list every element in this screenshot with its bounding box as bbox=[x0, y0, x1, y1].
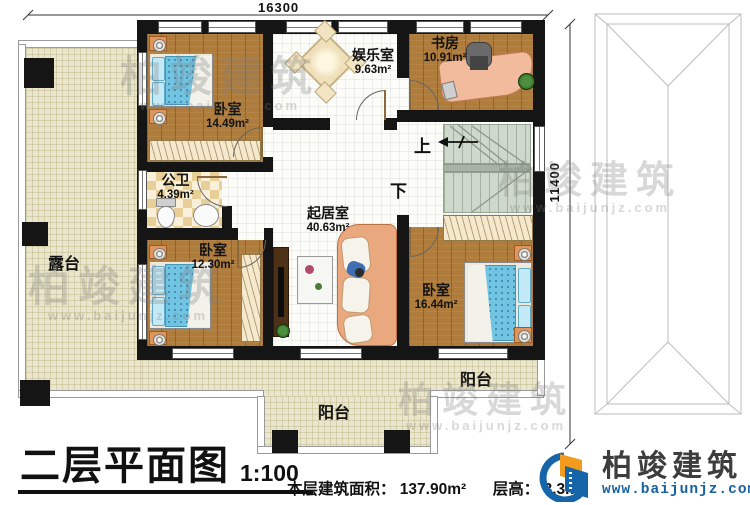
window-study-2 bbox=[470, 21, 522, 33]
window-bedroom-tl-2 bbox=[208, 21, 256, 33]
pillow bbox=[152, 82, 165, 106]
window-bedroom-br-south bbox=[438, 348, 508, 359]
window-study-1 bbox=[416, 21, 464, 33]
column-terrace-nw bbox=[24, 58, 54, 88]
room-label-entertainment: 娱乐室 9.63m² bbox=[343, 48, 403, 77]
parapet-right-edge bbox=[537, 358, 545, 396]
dimension-top-label: 16300 bbox=[258, 0, 299, 15]
lamp-icon bbox=[153, 248, 166, 260]
floor-area-text: 本层建筑面积： 137.90m² bbox=[287, 481, 466, 498]
window-bedroom-tl-1 bbox=[158, 21, 202, 33]
door-leaf bbox=[261, 127, 263, 157]
flower-decoration bbox=[305, 265, 314, 274]
column-terrace-w bbox=[22, 222, 48, 246]
wall-pier-hall bbox=[264, 228, 273, 240]
flower-decoration bbox=[315, 283, 322, 290]
terrace-parapet-top bbox=[18, 40, 142, 48]
brand-name: 柏竣建筑 bbox=[602, 452, 750, 482]
wall-bedroom-tl-south bbox=[137, 162, 273, 172]
window-bathroom-west bbox=[138, 170, 147, 210]
plan-title-block: 二层平面图 1:100 bbox=[18, 446, 313, 494]
sofa-cushion bbox=[342, 313, 374, 345]
terrace-floor bbox=[26, 48, 142, 390]
nightstand bbox=[149, 245, 167, 259]
room-label-terrace: 露台 bbox=[48, 250, 80, 274]
plan-title: 二层平面图 bbox=[20, 446, 230, 486]
column-terrace-sw bbox=[20, 380, 50, 406]
brand-text: 柏竣建筑 www.baijunjz.com bbox=[602, 452, 750, 498]
coffee-table bbox=[297, 256, 333, 304]
pillow bbox=[152, 297, 165, 326]
room-label-bedroom-br: 卧室 16.44m² bbox=[400, 283, 472, 312]
parapet-bottom-right bbox=[430, 390, 544, 398]
plant-icon bbox=[518, 73, 535, 90]
wall-entertainment-south bbox=[273, 118, 330, 130]
room-label-bedroom-bl: 卧室 12.30m² bbox=[168, 243, 258, 272]
balcony-parapet-right bbox=[430, 396, 438, 454]
brand-url: www.baijunjz.com bbox=[602, 482, 750, 498]
window-living-south bbox=[300, 348, 362, 359]
plant-icon bbox=[276, 324, 290, 338]
column-balcony-right bbox=[384, 430, 410, 453]
pillow bbox=[518, 268, 531, 303]
bedroom-br-wardrobe bbox=[443, 215, 533, 241]
stair-upper-flight bbox=[443, 124, 531, 164]
lamp-icon bbox=[153, 39, 166, 52]
door-leaf bbox=[409, 80, 411, 110]
window-entertainment-2 bbox=[338, 21, 388, 33]
plan-stats: 本层建筑面积： 137.90m² 层高： 3.3m bbox=[287, 477, 579, 499]
parapet-bottom-left bbox=[18, 390, 264, 398]
nightstand bbox=[514, 245, 532, 261]
sofa bbox=[337, 224, 397, 346]
tv-icon bbox=[278, 267, 284, 317]
nightstand bbox=[149, 331, 167, 345]
pillow bbox=[152, 57, 165, 81]
stair-up-label: 上 bbox=[414, 132, 431, 157]
stair-landing-edge bbox=[443, 164, 531, 172]
lamp-icon bbox=[153, 112, 166, 125]
floor-plan-canvas: 卧室 14.49m² 公卫 4.39m² 卧室 12.30m² 娱乐室 9.63… bbox=[0, 0, 750, 505]
window-bedroom-bl-west bbox=[138, 264, 147, 340]
room-label-study: 书房 10.91m² bbox=[410, 36, 480, 65]
nightstand bbox=[514, 327, 532, 343]
wall-study-south bbox=[397, 110, 533, 122]
sofa-cushion bbox=[341, 276, 371, 314]
door-leaf bbox=[384, 90, 386, 120]
wall-east bbox=[533, 20, 545, 360]
lamp-icon bbox=[518, 330, 531, 343]
room-label-balcony-bottom: 阳台 bbox=[318, 399, 350, 423]
room-label-balcony-right: 阳台 bbox=[460, 366, 492, 390]
wall-bathroom-south bbox=[137, 228, 238, 240]
person-head bbox=[355, 268, 364, 277]
lamp-icon bbox=[518, 248, 531, 261]
brand-logo-icon bbox=[538, 448, 596, 502]
sink-icon bbox=[193, 204, 219, 227]
terrace-parapet-left bbox=[18, 44, 26, 396]
bed-bedroom-tl bbox=[149, 53, 213, 107]
brand-block: 柏竣建筑 www.baijunjz.com bbox=[538, 448, 750, 502]
stair-lower-flight bbox=[443, 172, 531, 213]
room-label-living: 起居室 40.63m² bbox=[292, 206, 364, 235]
room-label-bedroom-tl: 卧室 14.49m² bbox=[180, 102, 275, 131]
dimension-right-label: 11400 bbox=[547, 162, 562, 202]
window-bedroom-tl-west bbox=[138, 52, 147, 106]
stair-down-label: 下 bbox=[390, 177, 407, 202]
window-stairwell-east bbox=[534, 126, 545, 172]
door-leaf bbox=[409, 227, 411, 257]
room-label-bathroom: 公卫 4.39m² bbox=[148, 173, 203, 202]
nightstand bbox=[149, 36, 167, 51]
nightstand bbox=[149, 109, 167, 124]
wall-bedroom-bl-east bbox=[263, 240, 273, 346]
window-bedroom-bl-south bbox=[172, 348, 234, 359]
wall-bedroom-br-pier bbox=[397, 215, 409, 227]
lamp-icon bbox=[153, 334, 166, 346]
pillow bbox=[152, 266, 165, 295]
